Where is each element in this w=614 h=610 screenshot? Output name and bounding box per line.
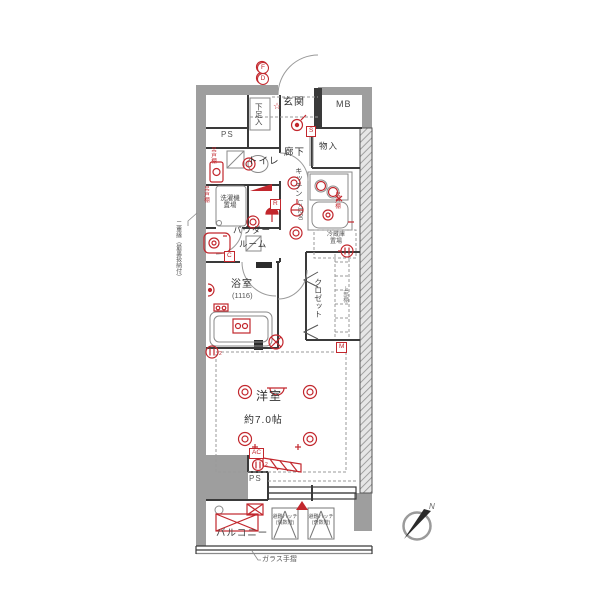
room-label-closet: クロゼット: [313, 278, 322, 318]
compass-north-label: N: [429, 503, 436, 512]
burner-icon: [317, 182, 326, 191]
room-label-toilet: トイレ: [248, 157, 280, 167]
hatch-even-label: 避難ハッチ(偶数階): [272, 515, 298, 526]
entrance-door-arc: [278, 55, 318, 95]
floorplan-graphics: [0, 0, 614, 610]
room-label-main: 洋室: [256, 390, 282, 403]
hatch-odd-line2: (奇数階): [312, 520, 330, 526]
hatch-odd-label: 避難ハッチ(奇数階): [308, 515, 334, 526]
main-room-guide: [216, 352, 346, 472]
bath-size-label: (1116): [232, 292, 253, 300]
main-size-label: 約7.0帖: [244, 415, 283, 426]
star-icon: ☆: [273, 102, 282, 112]
downlight-icon: [239, 386, 252, 399]
hatch-even-line2: (偶数階): [276, 520, 294, 526]
room-label-ps-top: PS: [221, 131, 234, 140]
powder-label-line1: パウダー: [233, 226, 271, 235]
cupboard-label-toilet: 吊戸棚: [210, 147, 216, 164]
downlight-icon: [239, 433, 252, 446]
cupboard-label-kitchen: 吊戸棚: [334, 192, 340, 209]
room-label-mb: MB: [336, 100, 352, 110]
room-label-hallway: 廊下: [284, 148, 305, 158]
closet-shelf-label: 上部棚: [342, 286, 348, 303]
kitchen-counter-icon: [308, 172, 352, 230]
cupboard-label-laundry: 吊戸棚: [203, 186, 209, 203]
laundry-label-line2: 置場: [224, 202, 237, 209]
hatched-wall: [360, 128, 372, 493]
c-badge: C: [224, 251, 235, 262]
glass-rail-label: ガラス手摺: [262, 556, 297, 564]
room-label-ps-bottom: PS: [249, 475, 262, 484]
downlight-icon: [304, 433, 317, 446]
room-label-storage: 物入: [319, 142, 338, 151]
fridge-label: 冷蔵庫置場: [322, 232, 350, 245]
fire-damper-d-badge: D: [257, 73, 269, 85]
drain-icon: [215, 506, 223, 514]
floorplan-page: 玄関 下足入 MB PS トイレ 廊下 物入 キッチン L=1200 吊戸棚 吊…: [0, 0, 614, 610]
room-label-shoe-box: 下足入: [254, 103, 262, 126]
fridge-label-line1: 冷蔵庫: [327, 232, 345, 238]
r-badge: R: [270, 199, 281, 210]
compass-icon: [404, 509, 432, 540]
switch-badge: S: [306, 126, 316, 137]
laundry-label-line1: 洗濯機: [220, 195, 240, 202]
toilet-cistern-icon: [210, 162, 223, 182]
sink-drain-icon: [323, 210, 333, 220]
outlet-count-ac: 2: [265, 463, 268, 469]
powder-label-line2: ルーム: [239, 240, 267, 249]
main-room-door-arc: [278, 270, 307, 299]
double-frame-note: 二重縁（最裏扱納付）: [174, 220, 181, 280]
outlet-icon: [253, 460, 264, 471]
laundry-label: 洗濯機置場: [215, 195, 245, 209]
outlet-count-main: 2: [219, 352, 222, 358]
room-label-kitchen: キッチン: [294, 167, 302, 197]
m-badge: M: [336, 342, 347, 353]
ac-badge: AC: [249, 448, 264, 459]
downlight-icon: [304, 386, 317, 399]
room-label-bath: 浴室: [231, 279, 253, 290]
fridge-label-line2: 置場: [330, 239, 342, 245]
room-label-balcony: バルコニー: [216, 529, 268, 539]
downlight-icon: [290, 227, 302, 239]
kitchen-length-label: L=1200: [296, 200, 303, 220]
room-label-genkan: 玄関: [283, 97, 305, 108]
entry-marker-icon: [296, 501, 308, 510]
counter-shelf-icon: [263, 458, 301, 472]
